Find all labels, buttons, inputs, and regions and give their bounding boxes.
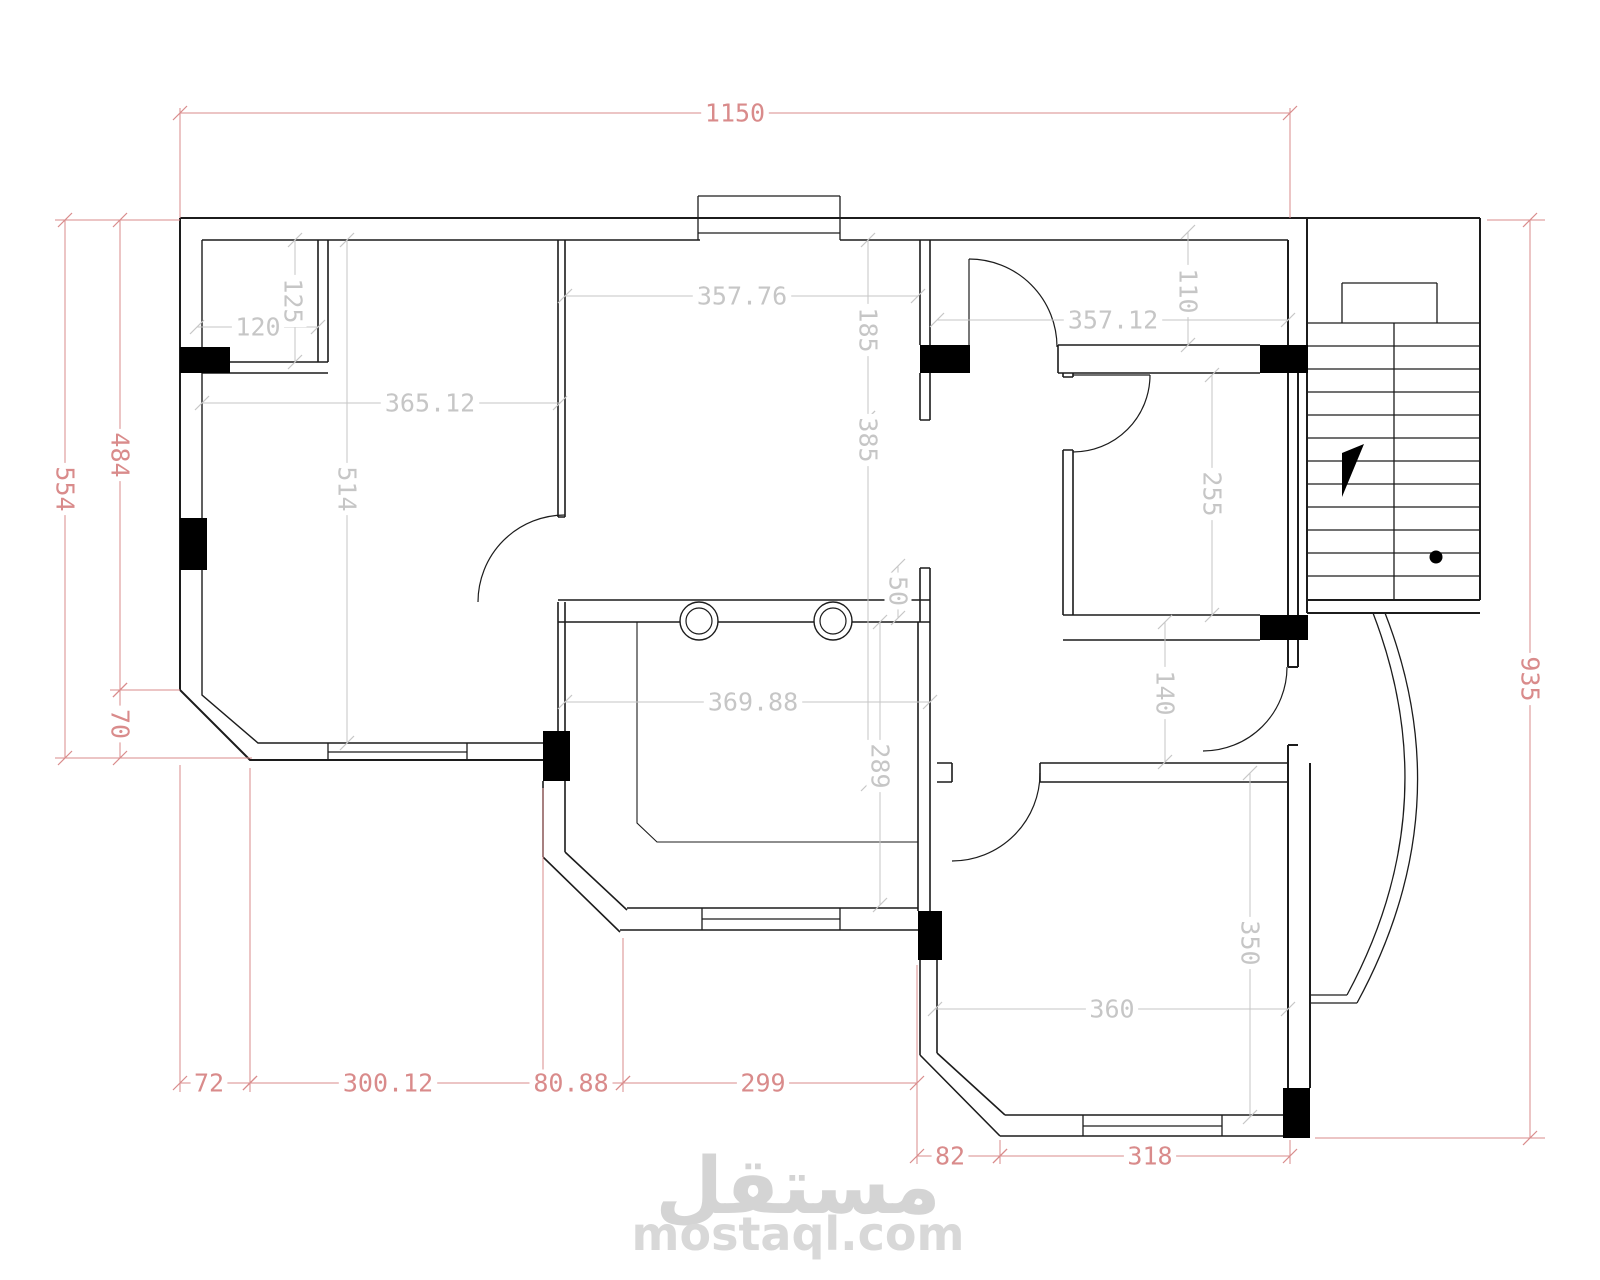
dimension: 935	[1516, 213, 1545, 1145]
column	[180, 347, 230, 373]
dimension-label-group: 50	[884, 573, 913, 610]
dimension: 350	[1236, 766, 1265, 1124]
dimension: 140	[1151, 615, 1180, 769]
round-columns	[680, 602, 852, 640]
interior-dimensions: 120125365.12514357.76185385110357.122555…	[190, 225, 1295, 1124]
door-arc-left-room	[478, 515, 565, 602]
overall-extension-lines	[55, 108, 1545, 1164]
dimension-label-group: 935	[1516, 653, 1545, 705]
dimension-label-group: 350	[1236, 917, 1265, 969]
column	[1260, 615, 1308, 640]
dimension-label: 72	[194, 1069, 224, 1098]
dimension-label-group: 82	[932, 1142, 969, 1171]
dimension-label-group: 80.88	[530, 1069, 613, 1098]
dimension-label-group: 1150	[701, 99, 769, 128]
dimension: 360	[928, 995, 1295, 1024]
dimension-label: 299	[740, 1069, 785, 1098]
dimension-label: 300.12	[343, 1069, 433, 1098]
dimension-label: 110	[1174, 268, 1203, 313]
dimension-label: 385	[854, 417, 883, 462]
dimension-label: 120	[235, 313, 280, 342]
dimension-label-group: 140	[1151, 667, 1180, 719]
dimension-label: 1150	[705, 99, 765, 128]
round-column	[686, 608, 712, 634]
dimension-label-group: 369.88	[704, 688, 802, 717]
floor-plan-page: مستقل mostaql.com	[0, 0, 1600, 1280]
dimension: 255	[1198, 368, 1227, 622]
dimension-label-group: 365.12	[381, 389, 479, 418]
dimension-label-group: 484	[106, 429, 135, 481]
stair-landing	[1342, 283, 1437, 323]
dimension-label: 360	[1089, 995, 1134, 1024]
dimension-label: 255	[1198, 471, 1227, 516]
dimension-label-group: 385	[854, 414, 883, 466]
door-arc-right-middle-room	[1073, 375, 1150, 452]
watermark: مستقل mostaql.com	[632, 1142, 965, 1261]
dimension-label: 80.88	[533, 1069, 608, 1098]
dimension-label: 318	[1127, 1142, 1172, 1171]
dimension: 50	[884, 559, 913, 625]
dimension: 300.12	[243, 1069, 550, 1098]
dimension-label: 185	[854, 307, 883, 352]
watermark-domain: mostaql.com	[632, 1207, 965, 1261]
door-arc-bottom-right-room	[952, 773, 1040, 861]
column	[1283, 1088, 1310, 1138]
dimension: 554	[51, 213, 80, 765]
dimension: 125	[279, 233, 308, 369]
dimension: 110	[1174, 225, 1203, 352]
dimension: 385	[854, 411, 883, 791]
dimension-label: 50	[884, 576, 913, 606]
column	[1260, 345, 1308, 373]
dimension: 72	[173, 1069, 257, 1098]
dimension-label-group: 360	[1086, 995, 1138, 1024]
dimension: 289	[866, 615, 895, 912]
dimension: 185	[854, 233, 883, 425]
dimension-label-group: 357.12	[1064, 306, 1162, 335]
dimension: 299	[616, 1069, 924, 1098]
dimension: 1150	[173, 99, 1297, 128]
dimension-label: 369.88	[708, 688, 798, 717]
dimension-label-group: 125	[279, 275, 308, 327]
dimension-label: 514	[333, 466, 362, 511]
dimension-label: 289	[866, 743, 895, 788]
dimension-label-group: 318	[1124, 1142, 1176, 1171]
stair-start-dot	[1430, 551, 1443, 564]
dimension-label: 365.12	[385, 389, 475, 418]
dimension: 357.12	[930, 306, 1295, 335]
dimension-label-group: 255	[1198, 468, 1227, 520]
dimension: 514	[333, 233, 362, 750]
door-arc-balcony	[1203, 667, 1287, 751]
dimension-label: 140	[1151, 670, 1180, 715]
dimension-label: 125	[279, 278, 308, 323]
overall-dimensions: 11505544847093572300.1280.8829982318	[51, 99, 1545, 1171]
dimension-label-group: 514	[333, 463, 362, 515]
dimension-label-group: 185	[854, 304, 883, 356]
column	[543, 731, 570, 781]
floor-plan-canvas: مستقل mostaql.com	[0, 0, 1600, 1280]
dimension-label-group: 357.76	[693, 282, 791, 311]
dimension: 484	[106, 213, 135, 697]
windows	[328, 196, 1222, 1136]
column	[180, 518, 207, 570]
window-bottom-middle	[702, 908, 840, 930]
dimension-label: 350	[1236, 920, 1265, 965]
dimension-label-group: 299	[737, 1069, 789, 1098]
door-arc-top-right-room	[969, 259, 1057, 347]
window-left-room	[328, 743, 467, 760]
dimension: 318	[993, 1142, 1297, 1171]
dimension-label: 82	[935, 1142, 965, 1171]
dimension-label: 554	[51, 466, 80, 511]
round-column	[820, 608, 846, 634]
window-bottom-right	[1083, 1115, 1222, 1136]
column	[920, 345, 970, 373]
dimension: 70	[106, 683, 135, 765]
dimension-label-group: 110	[1174, 265, 1203, 317]
dimension-label-group: 554	[51, 463, 80, 515]
dimension-label-group: 70	[106, 706, 135, 743]
dimension-label-group: 289	[866, 740, 895, 792]
dimension-label: 935	[1516, 656, 1545, 701]
dimension: 365.12	[195, 389, 567, 418]
dimension-label: 357.12	[1068, 306, 1158, 335]
dimension-label: 484	[106, 432, 135, 477]
dimension-label: 357.76	[697, 282, 787, 311]
dimension: 80.88	[530, 1069, 631, 1098]
curved-balcony	[1310, 613, 1418, 1003]
dimension-label-group: 120	[232, 313, 284, 342]
dimension-label-group: 72	[191, 1069, 228, 1098]
stair-direction-triangle	[1342, 444, 1364, 497]
dimension-label-group: 300.12	[339, 1069, 437, 1098]
staircase	[1308, 283, 1480, 600]
column	[918, 911, 942, 960]
dimension-label: 70	[106, 709, 135, 739]
